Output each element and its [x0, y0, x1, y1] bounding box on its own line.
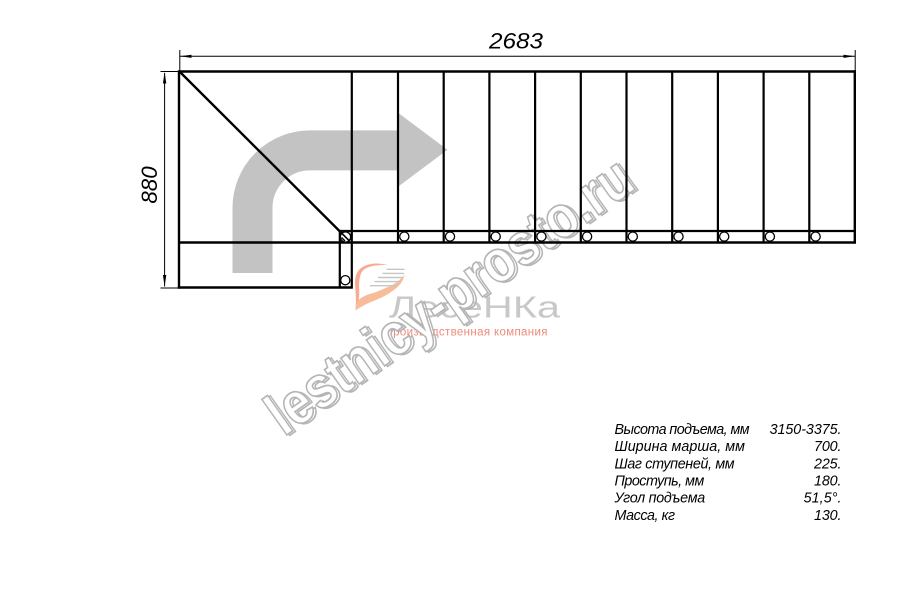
- svg-text:Масса, кг: Масса, кг: [615, 508, 676, 524]
- svg-text:Высота подъема, мм: Высота подъема, мм: [615, 422, 750, 438]
- svg-text:3150-3375.: 3150-3375.: [770, 422, 842, 438]
- svg-text:Ширина марша, мм: Ширина марша, мм: [615, 439, 746, 455]
- svg-text:Проступь, мм: Проступь, мм: [615, 474, 705, 490]
- svg-text:180.: 180.: [814, 474, 842, 490]
- svg-text:Угол подъема: Угол подъема: [614, 491, 706, 507]
- svg-text:2683: 2683: [488, 28, 544, 53]
- svg-text:130.: 130.: [814, 508, 842, 524]
- svg-text:51,5°.: 51,5°.: [804, 491, 842, 507]
- svg-text:700.: 700.: [814, 439, 842, 455]
- svg-text:Шаг ступеней, мм: Шаг ступеней, мм: [615, 456, 735, 472]
- svg-text:880: 880: [137, 166, 162, 204]
- svg-text:225.: 225.: [813, 456, 842, 472]
